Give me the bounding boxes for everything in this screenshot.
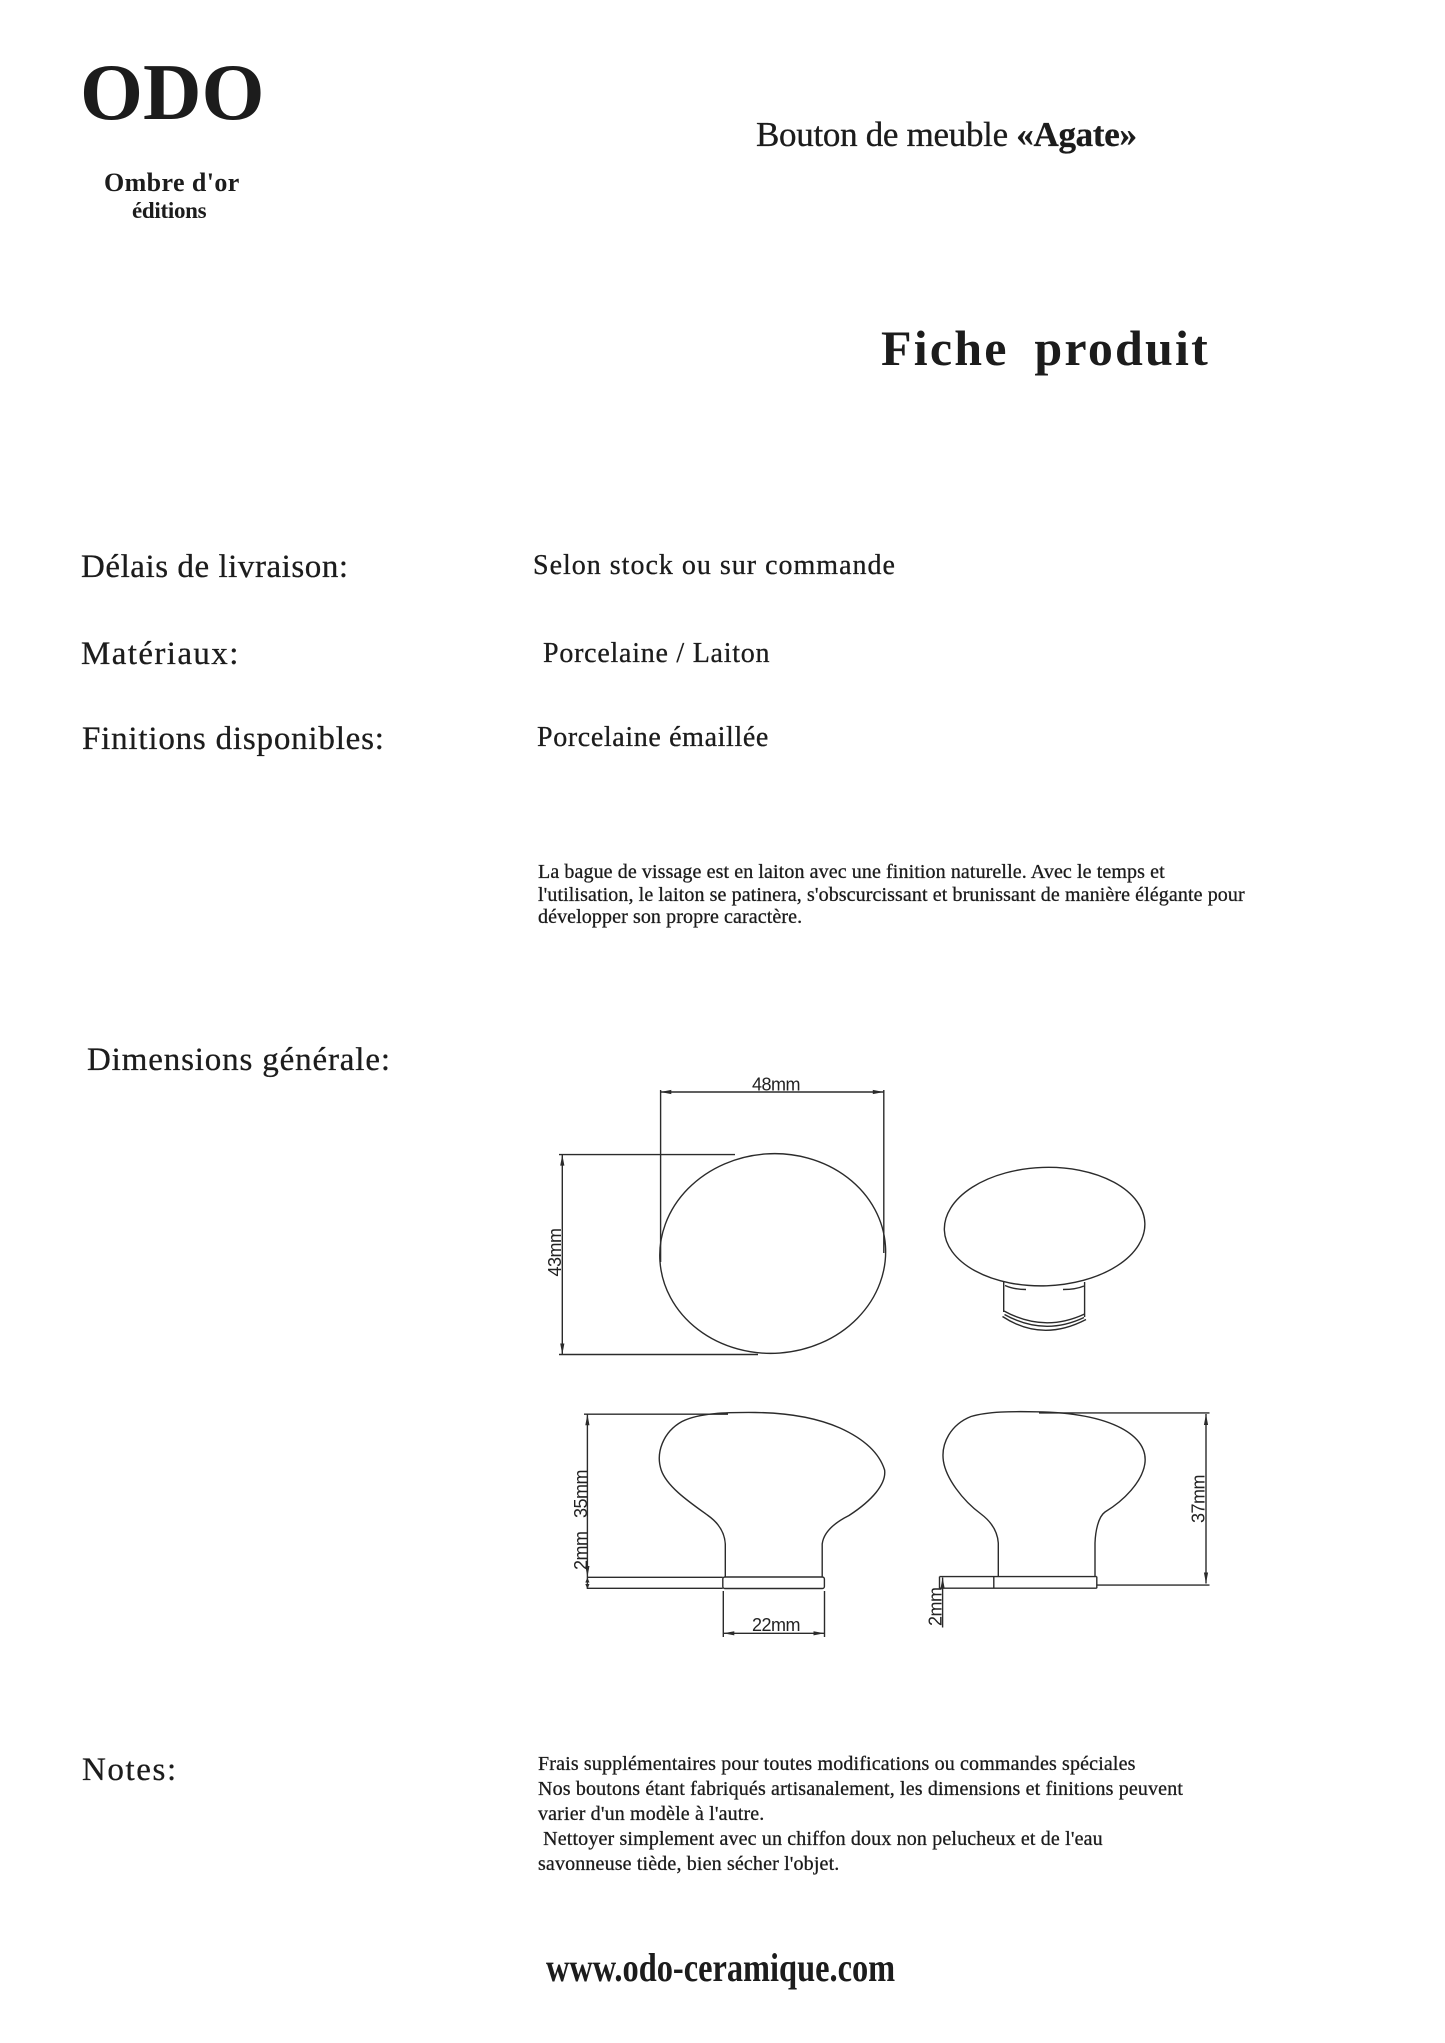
svg-text:22mm: 22mm [752, 1615, 800, 1635]
svg-text:43mm: 43mm [545, 1228, 565, 1276]
svg-text:35mm: 35mm [571, 1470, 591, 1518]
svg-text:2mm: 2mm [926, 1588, 946, 1627]
svg-text:2mm: 2mm [571, 1532, 591, 1571]
svg-text:48mm: 48mm [752, 1075, 800, 1095]
svg-text:37mm: 37mm [1189, 1475, 1209, 1523]
